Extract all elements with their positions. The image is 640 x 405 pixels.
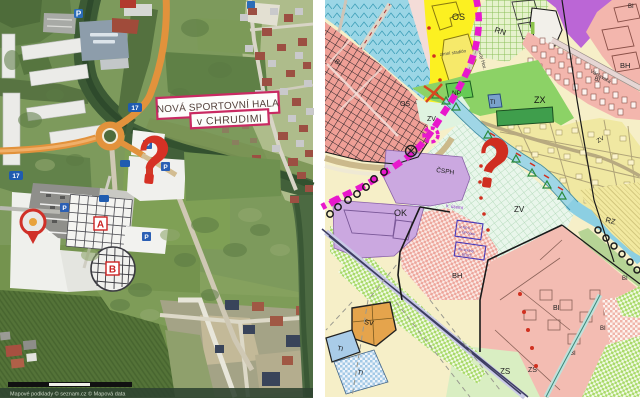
- svg-text:BH: BH: [620, 61, 630, 70]
- svg-text:P: P: [76, 10, 82, 19]
- svg-text:OK: OK: [394, 208, 407, 218]
- svg-text:Mapové podklady © seznam.cz ©: Mapové podklady © seznam.cz © Mapová dat…: [10, 391, 126, 398]
- svg-text:A: A: [97, 220, 104, 231]
- svg-text:TI: TI: [490, 100, 496, 106]
- svg-text:BI: BI: [600, 326, 606, 332]
- svg-text:P: P: [144, 234, 149, 241]
- svg-text:ZS: ZS: [528, 367, 537, 374]
- svg-text:B: B: [109, 265, 116, 276]
- svg-text:OS: OS: [452, 12, 465, 22]
- svg-text:P: P: [163, 164, 168, 171]
- svg-text:17: 17: [12, 173, 20, 180]
- svg-text:ZX: ZX: [534, 95, 546, 105]
- svg-text:BI: BI: [553, 305, 560, 312]
- svg-text:OS: OS: [400, 101, 410, 108]
- svg-text:P: P: [62, 205, 67, 212]
- svg-text:ZV: ZV: [514, 205, 525, 214]
- svg-text:BI: BI: [628, 4, 634, 10]
- svg-text:17: 17: [131, 105, 139, 112]
- svg-text:BI: BI: [622, 276, 628, 282]
- svg-text:BH: BH: [452, 271, 462, 280]
